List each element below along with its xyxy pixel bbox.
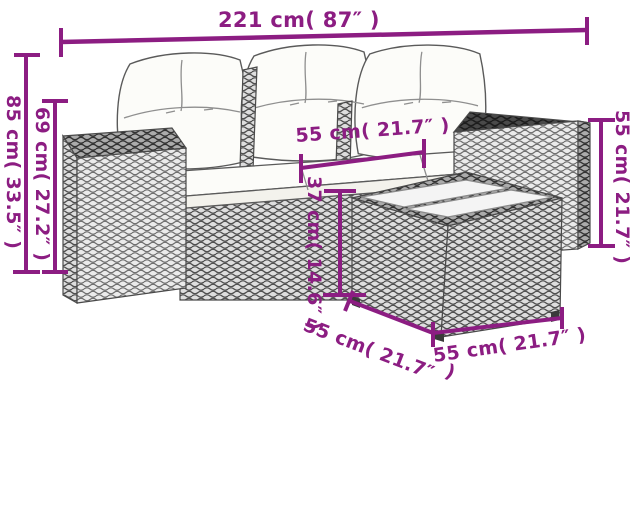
coffee-table	[352, 172, 562, 342]
arm-height-label: 69 cm( 27.2″ )	[31, 107, 53, 261]
left-armrest	[63, 128, 186, 303]
overall-width-label: 221 cm( 87″ )	[218, 8, 380, 32]
arm-right-height-label: 55 cm( 21.7″ )	[611, 110, 633, 264]
left-armrest-front	[77, 148, 186, 303]
left-armrest-side	[63, 136, 77, 303]
table-height-label: 37 cm( 14.6″ )	[303, 176, 325, 330]
right-armrest-side	[578, 121, 590, 249]
dim-line-arm-right-height	[588, 120, 615, 246]
back-height-label: 85 cm( 33.5″ )	[2, 95, 24, 249]
product-dimension-diagram: 221 cm( 87″ ) 85 cm( 33.5″ ) 69 cm( 27.2…	[0, 0, 640, 514]
diagram-canvas: 221 cm( 87″ ) 85 cm( 33.5″ ) 69 cm( 27.2…	[0, 0, 640, 514]
